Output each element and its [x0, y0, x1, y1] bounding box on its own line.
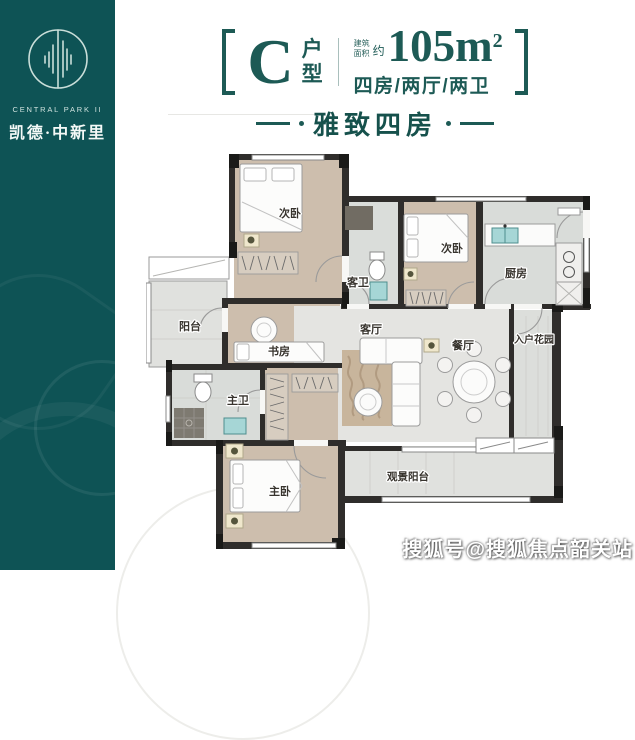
closet-hangers	[406, 290, 446, 306]
sofa-chaise	[392, 362, 420, 426]
window-boxes-right	[476, 438, 554, 453]
entry-door-leaf	[558, 208, 580, 215]
area-approx: 约	[373, 42, 385, 59]
unit-letter: C	[247, 31, 293, 93]
tagline-rule-right	[460, 122, 494, 125]
floor-plan: 次卧 次卧 厨房 客卫 阳台 书房 客厅 餐厅 入户花园 主卫 主卧 观景阳台	[146, 150, 604, 550]
unit-type-label: 户 型	[302, 37, 323, 87]
area-value: 105m2	[388, 26, 503, 67]
room-label-entry-garden: 入户花园	[514, 333, 554, 346]
room-label-master-bedroom: 主卧	[269, 484, 291, 498]
toilet	[195, 382, 211, 402]
area-prefix-bottom: 面积	[354, 49, 370, 59]
area-block: 建筑 面积 约 105m2 四房/两厅/两卫	[354, 26, 503, 98]
room-label-bedroom-left: 次卧	[279, 206, 301, 220]
brand-name-en: CENTRAL PARK II	[0, 105, 115, 114]
left-bracket	[222, 29, 235, 95]
bath-sink	[370, 282, 387, 300]
tagline-dot-right	[446, 121, 451, 126]
right-bracket	[515, 29, 528, 95]
bath-mat	[345, 206, 373, 230]
sofa-back	[360, 338, 422, 364]
room-label-view-balcony: 观景阳台	[387, 470, 429, 483]
area-sup: 2	[493, 30, 503, 52]
coffee-table	[354, 388, 382, 416]
watermark: 搜狐号@搜狐焦点韶关站	[402, 533, 633, 562]
brand-name-cn: 凯德·中新里	[0, 119, 115, 143]
tagline-text: 雅致四房	[313, 105, 437, 142]
unit-type-char-top: 户	[302, 37, 323, 62]
closet-hangers	[238, 252, 298, 274]
tagline-dot-left	[299, 121, 304, 126]
room-label-master-bath: 主卫	[227, 393, 249, 407]
layout-spec: 四房/两厅/两卫	[354, 71, 503, 98]
unit-header: C 户 型 建筑 面积 约 105m2 四房/两厅/两卫	[115, 26, 635, 98]
unit-type-char-bottom: 型	[302, 62, 323, 87]
area-prefix: 建筑 面积	[354, 39, 370, 59]
round-table	[251, 317, 277, 343]
brand-logo: CENTRAL PARK II 凯德·中新里	[0, 26, 115, 143]
area-prefix-top: 建筑	[354, 39, 370, 49]
room-label-dining: 餐厅	[451, 338, 474, 352]
room-label-balcony-left: 阳台	[179, 319, 201, 333]
split-circle-bars-logo-icon	[25, 26, 91, 92]
shower	[174, 408, 204, 438]
tagline: 雅致四房	[115, 105, 635, 142]
room-label-guest-bath: 客卫	[346, 275, 369, 289]
header-divider	[338, 38, 339, 86]
tagline-rule-left	[256, 122, 290, 125]
dining-table	[453, 361, 495, 403]
room-label-study: 书房	[268, 344, 290, 358]
room-label-kitchen: 厨房	[505, 266, 527, 280]
room-label-living: 客厅	[359, 322, 382, 336]
bath-sink	[224, 418, 246, 434]
toilet	[369, 260, 385, 280]
brand-band: CENTRAL PARK II 凯德·中新里	[0, 0, 115, 570]
room-label-bedroom-right: 次卧	[441, 241, 463, 255]
